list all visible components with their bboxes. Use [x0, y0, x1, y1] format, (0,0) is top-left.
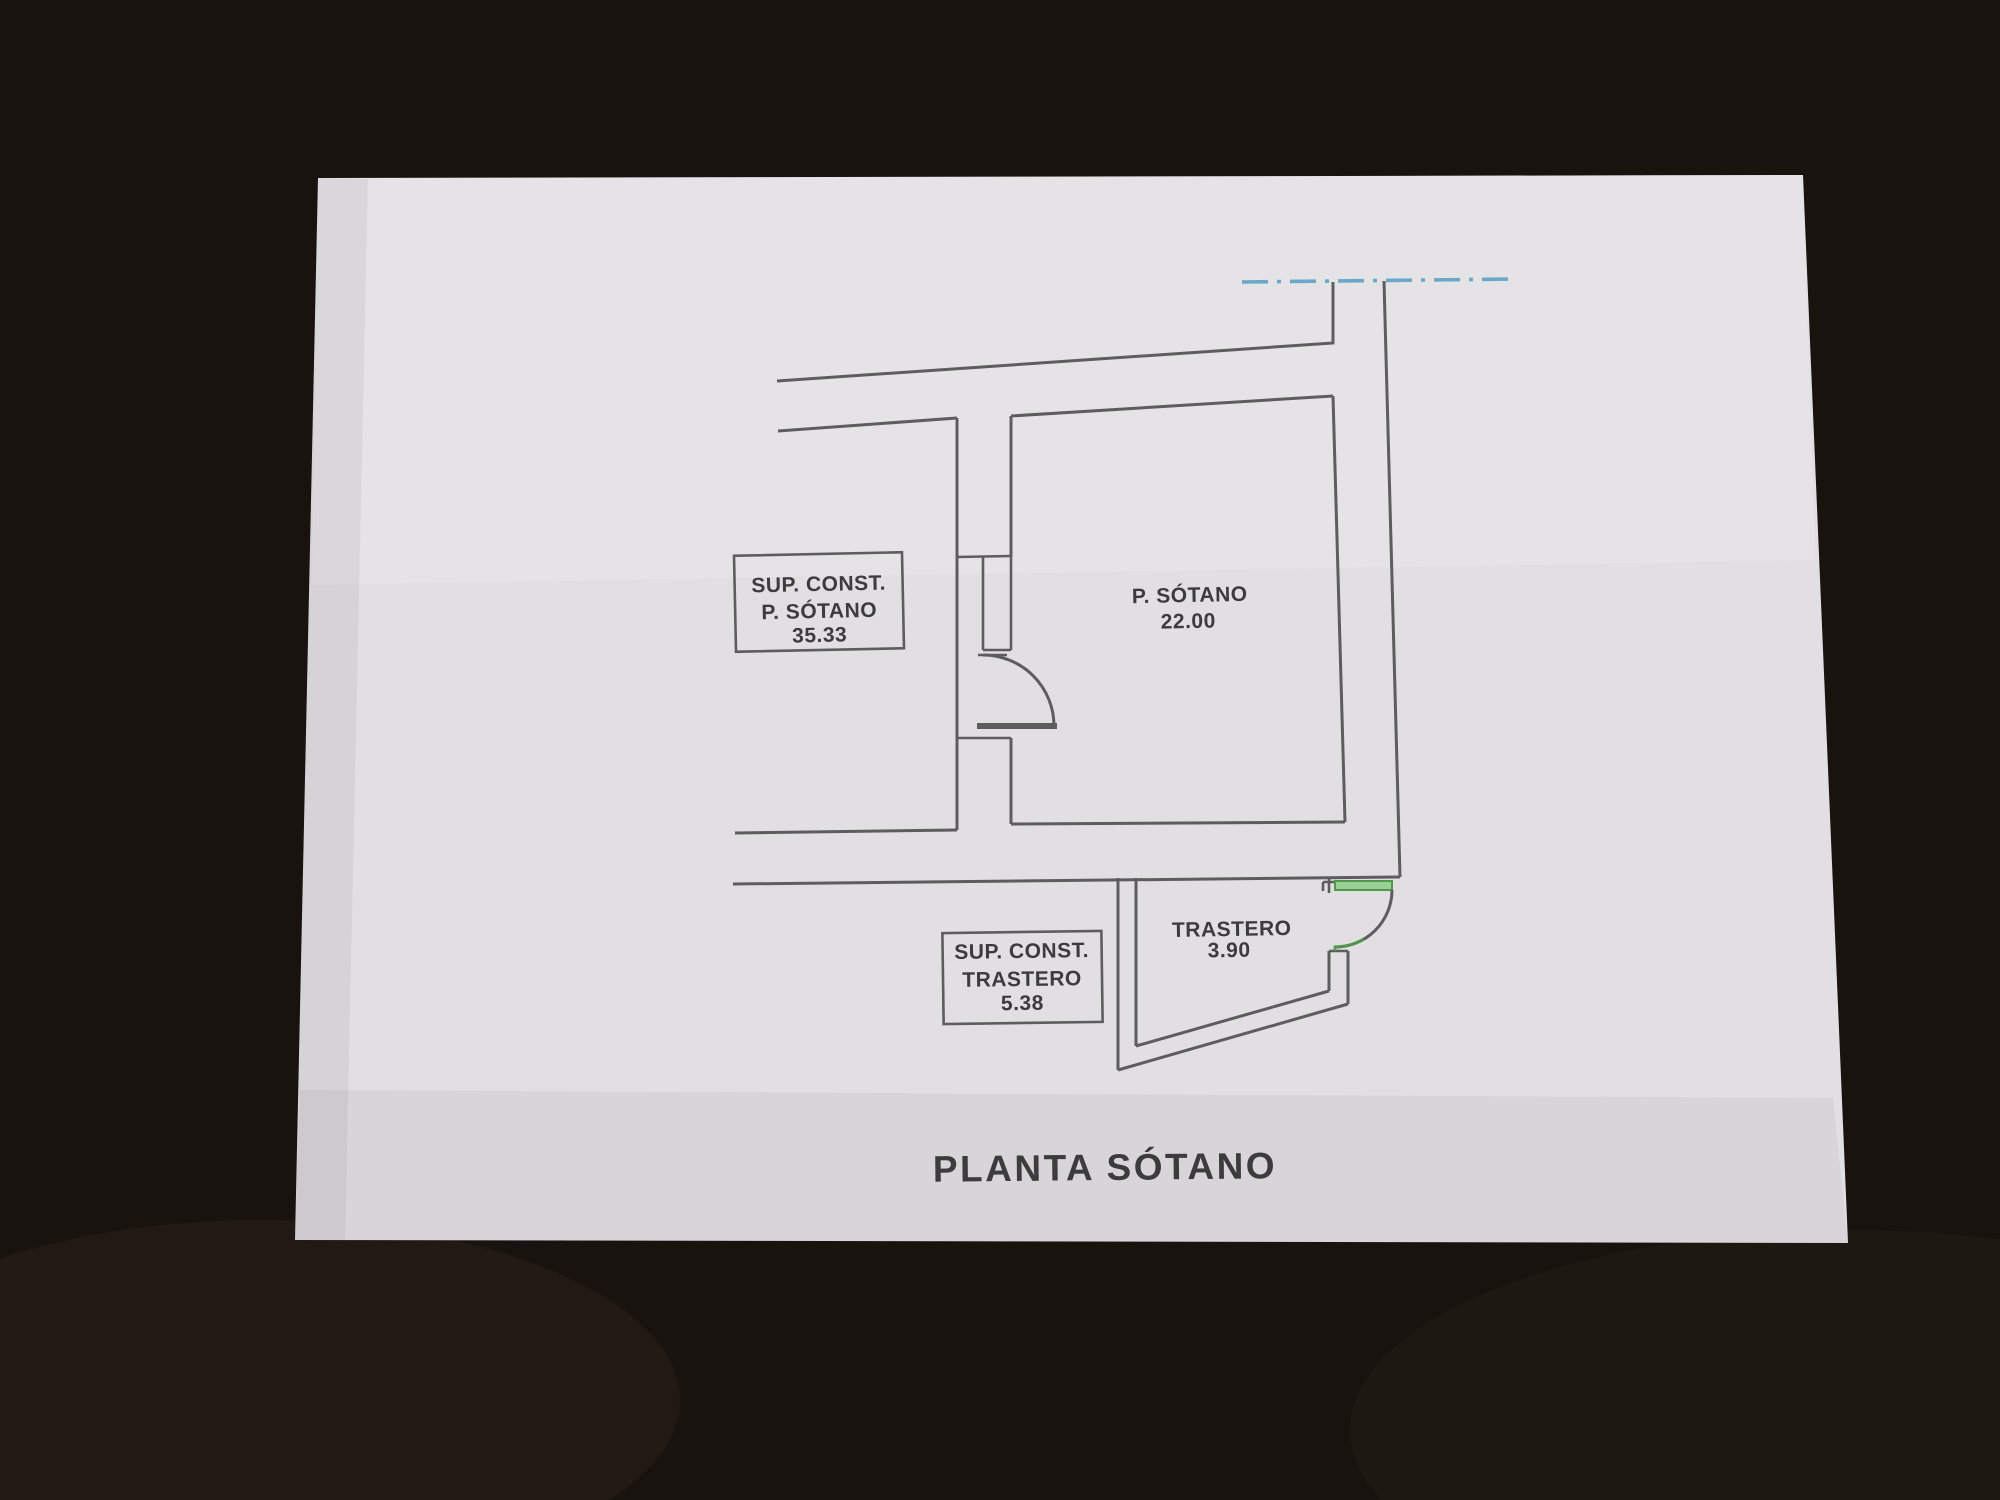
- room-bottom-inner-line: [1011, 822, 1345, 824]
- label-psotano-line2: P. SÓTANO: [761, 598, 877, 624]
- interior-wall-connector: [957, 556, 1011, 557]
- photo-scene: SUP. CONST. P. SÓTANO 35.33 P. SÓTANO 22…: [0, 0, 2000, 1500]
- room-psotano-value: 22.00: [1160, 609, 1216, 633]
- label-trastero-value: 5.38: [1001, 992, 1044, 1016]
- label-trastero-line1: SUP. CONST.: [954, 939, 1089, 964]
- room-psotano-name: P. SÓTANO: [1132, 582, 1248, 608]
- label-psotano-line1: SUP. CONST.: [751, 572, 886, 598]
- label-psotano-value: 35.33: [792, 623, 848, 647]
- plan-title: PLANTA SÓTANO: [933, 1144, 1278, 1190]
- paper-sheet: [295, 175, 1848, 1243]
- room-trastero-value: 3.90: [1207, 939, 1250, 963]
- label-trastero-line2: TRASTERO: [962, 967, 1082, 992]
- trastero-door-leaf-green: [1335, 881, 1392, 890]
- basement-floor-plan-photo: SUP. CONST. P. SÓTANO 35.33 P. SÓTANO 22…: [0, 0, 2000, 1500]
